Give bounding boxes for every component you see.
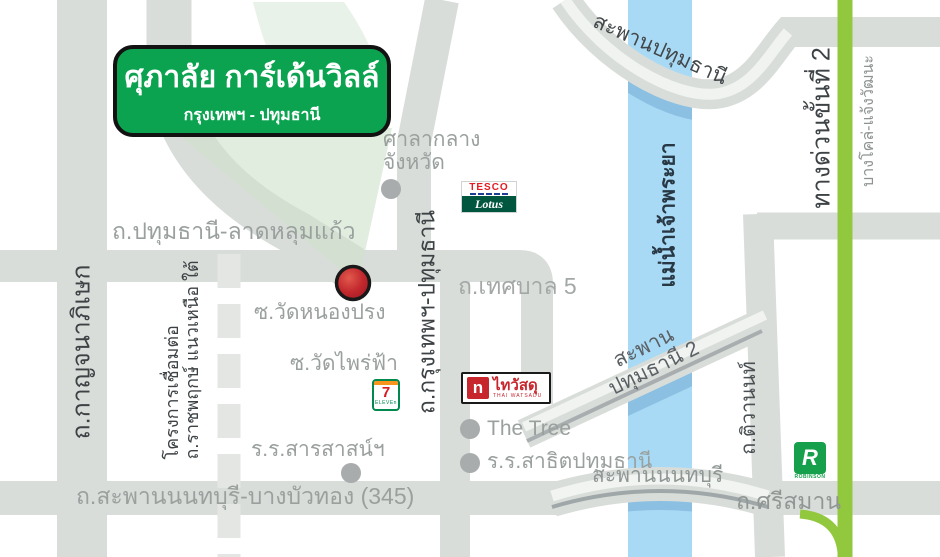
expressway-route-label: บางโคล่-แจ้งวัฒนะ	[860, 55, 878, 187]
river-label: แม่น้ำเจ้าพระยา	[656, 142, 679, 287]
tesco-dashes	[462, 193, 516, 195]
project-subtitle: กรุงเทพฯ - ปทุมธานี	[184, 103, 321, 128]
sarasas-school-dot	[341, 463, 361, 483]
road-label-thetsaban5: ถ.เทศบาล 5	[458, 274, 577, 299]
road-label-soi-wat-nong-prong: ซ.วัดหนองปรง	[254, 301, 385, 324]
ratchaphruek-project-line2: ถ.ราชพฤกษ์ แนวเหนือ ใต้	[183, 260, 203, 459]
seven-eleven-wordmark: ELEVEn	[374, 401, 398, 406]
robinson-logo: R ROBINSON	[792, 442, 828, 481]
location-map: ศุภาลัย การ์เด้นวิลล์ กรุงเทพฯ - ปทุมธาน…	[0, 0, 940, 557]
expressway-ramp	[800, 514, 842, 552]
thai-watsadu-logo: n ไทวัสดุ THAI WATSADU	[461, 372, 551, 404]
road-label-pathumthani-latlumkaeo: ถ.ปทุมธานี-ลาดหลุมแก้ว	[112, 219, 356, 244]
tesco-wordmark: TESCO	[462, 182, 516, 193]
ratchaphruek-project-line1: โครงการเชื่อมต่อ	[163, 260, 183, 459]
road-label-tiwanon: ถ.ติวานนท์	[738, 361, 760, 455]
seven-eleven-logo: 7 ELEVEn	[372, 379, 400, 411]
expressway-label: ทางด่วนขั้นที่ 2	[808, 47, 836, 209]
thai-watsadu-wordmark: ไทวัสดุ	[493, 378, 542, 393]
the-tree-dot	[460, 419, 480, 439]
lotus-wordmark: Lotus	[462, 196, 516, 212]
satit-school-dot	[460, 453, 480, 473]
landmark-label-provincial-hall: ศาลากลาง จังหวัด	[383, 128, 480, 174]
landmark-label-satit-school: ร.ร.สาธิตปทุมธานี	[487, 450, 652, 473]
road-label-soi-wat-phrai-fa: ซ.วัดไพร่ฟ้า	[290, 352, 398, 375]
road-label-kanchanaphisek: ถ.กาญจนาภิเษก	[68, 265, 96, 440]
provincial-hall-dot	[381, 179, 401, 199]
tesco-lotus-logo: TESCO Lotus	[461, 181, 517, 213]
robinson-wordmark: ROBINSON	[792, 474, 828, 481]
landmark-label-sarasas-school: ร.ร.สารสาสน์ฯ	[251, 438, 385, 461]
thai-watsadu-wordmark-en: THAI WATSADU	[493, 394, 542, 399]
project-badge: ศุภาลัย การ์เด้นวิลล์ กรุงเทพฯ - ปทุมธาน…	[113, 45, 391, 137]
project-location-marker	[337, 267, 370, 300]
road-label-srisaman: ถ.ศรีสมาน	[736, 489, 841, 514]
landmark-label-the-tree: The Tree	[487, 417, 571, 440]
provincial-hall-line1: ศาลากลาง	[383, 128, 480, 151]
road-label-ratchaphruek-project: โครงการเชื่อมต่อ ถ.ราชพฤกษ์ แนวเหนือ ใต้	[163, 260, 203, 459]
project-title: ศุภาลัย การ์เด้นวิลล์	[125, 54, 380, 101]
provincial-hall-line2: จังหวัด	[383, 151, 480, 174]
robinson-r-icon: R	[794, 442, 826, 474]
road-label-krungthep-pathumthani: ถ.กรุงเทพฯ-ปทุมธานี	[414, 210, 439, 414]
road-label-route-345: ถ.สะพานนนทบุรี-บางบัวทอง (345)	[76, 484, 414, 509]
thai-watsadu-house-icon: n	[467, 377, 489, 399]
seven-eleven-7: 7	[374, 385, 398, 401]
